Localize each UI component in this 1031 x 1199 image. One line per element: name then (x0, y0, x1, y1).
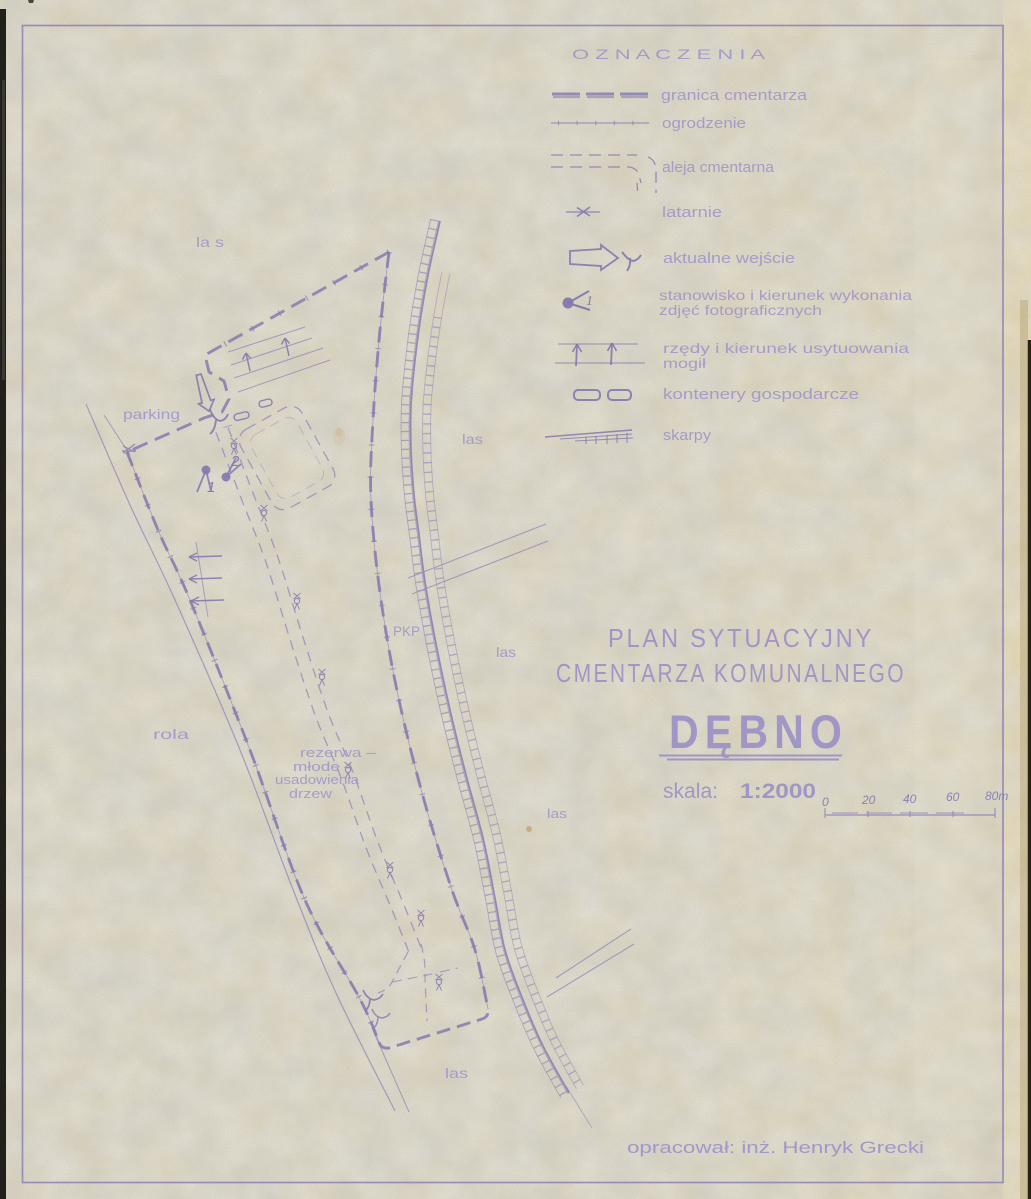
svg-text:la s: la s (196, 234, 224, 250)
svg-text:60: 60 (946, 790, 960, 804)
svg-text:skala:: skala: (663, 780, 718, 803)
svg-text:usadowienia: usadowienia (275, 772, 360, 787)
svg-text:PLAN SYTUACYJNY: PLAN SYTUACYJNY (608, 623, 874, 653)
svg-text:latarnie: latarnie (662, 204, 722, 221)
svg-text:2: 2 (230, 453, 240, 470)
svg-text:O Z N A C Z E N I A: O Z N A C Z E N I A (572, 46, 766, 62)
svg-text:DĘBNO: DĘBNO (669, 705, 848, 758)
svg-text:las: las (496, 644, 516, 660)
svg-text:parking: parking (123, 406, 180, 422)
svg-text:1: 1 (586, 294, 593, 309)
svg-text:aleja cmentarna: aleja cmentarna (662, 159, 775, 176)
svg-text:granica cmentarza: granica cmentarza (661, 87, 808, 104)
svg-text:CMENTARZA KOMUNALNEGO: CMENTARZA KOMUNALNEGO (556, 658, 906, 688)
svg-text:20: 20 (861, 793, 876, 807)
svg-text:rola: rola (153, 726, 189, 742)
svg-text:drzew: drzew (289, 786, 333, 801)
svg-text:ogrodzenie: ogrodzenie (662, 115, 746, 132)
svg-text:aktualne wejście: aktualne wejście (663, 250, 795, 267)
svg-text:1:2000: 1:2000 (740, 780, 816, 803)
svg-text:las: las (445, 1065, 468, 1081)
svg-text:skarpy: skarpy (663, 427, 712, 444)
svg-text:0: 0 (822, 795, 829, 809)
svg-text:mogił: mogił (663, 355, 707, 371)
svg-text:opracował: inż. Henryk Greck: opracował: inż. Henryk Grecki (627, 1138, 924, 1157)
svg-text:80m: 80m (985, 789, 1008, 803)
svg-text:stanowisko i kierunek wykonani: stanowisko i kierunek wykonania (659, 287, 912, 303)
svg-text:zdjęć fotograficznych: zdjęć fotograficznych (659, 302, 822, 318)
svg-text:rezerwa –: rezerwa – (300, 745, 377, 760)
svg-text:40: 40 (903, 792, 917, 806)
svg-text:rzędy i kierunek usytuowania: rzędy i kierunek usytuowania (663, 340, 909, 356)
svg-text:las: las (547, 806, 568, 821)
svg-text:kontenery gospodarcze: kontenery gospodarcze (663, 386, 859, 403)
svg-text:1: 1 (207, 479, 215, 496)
svg-text:las: las (462, 431, 483, 447)
svg-text:PKP: PKP (393, 623, 420, 639)
